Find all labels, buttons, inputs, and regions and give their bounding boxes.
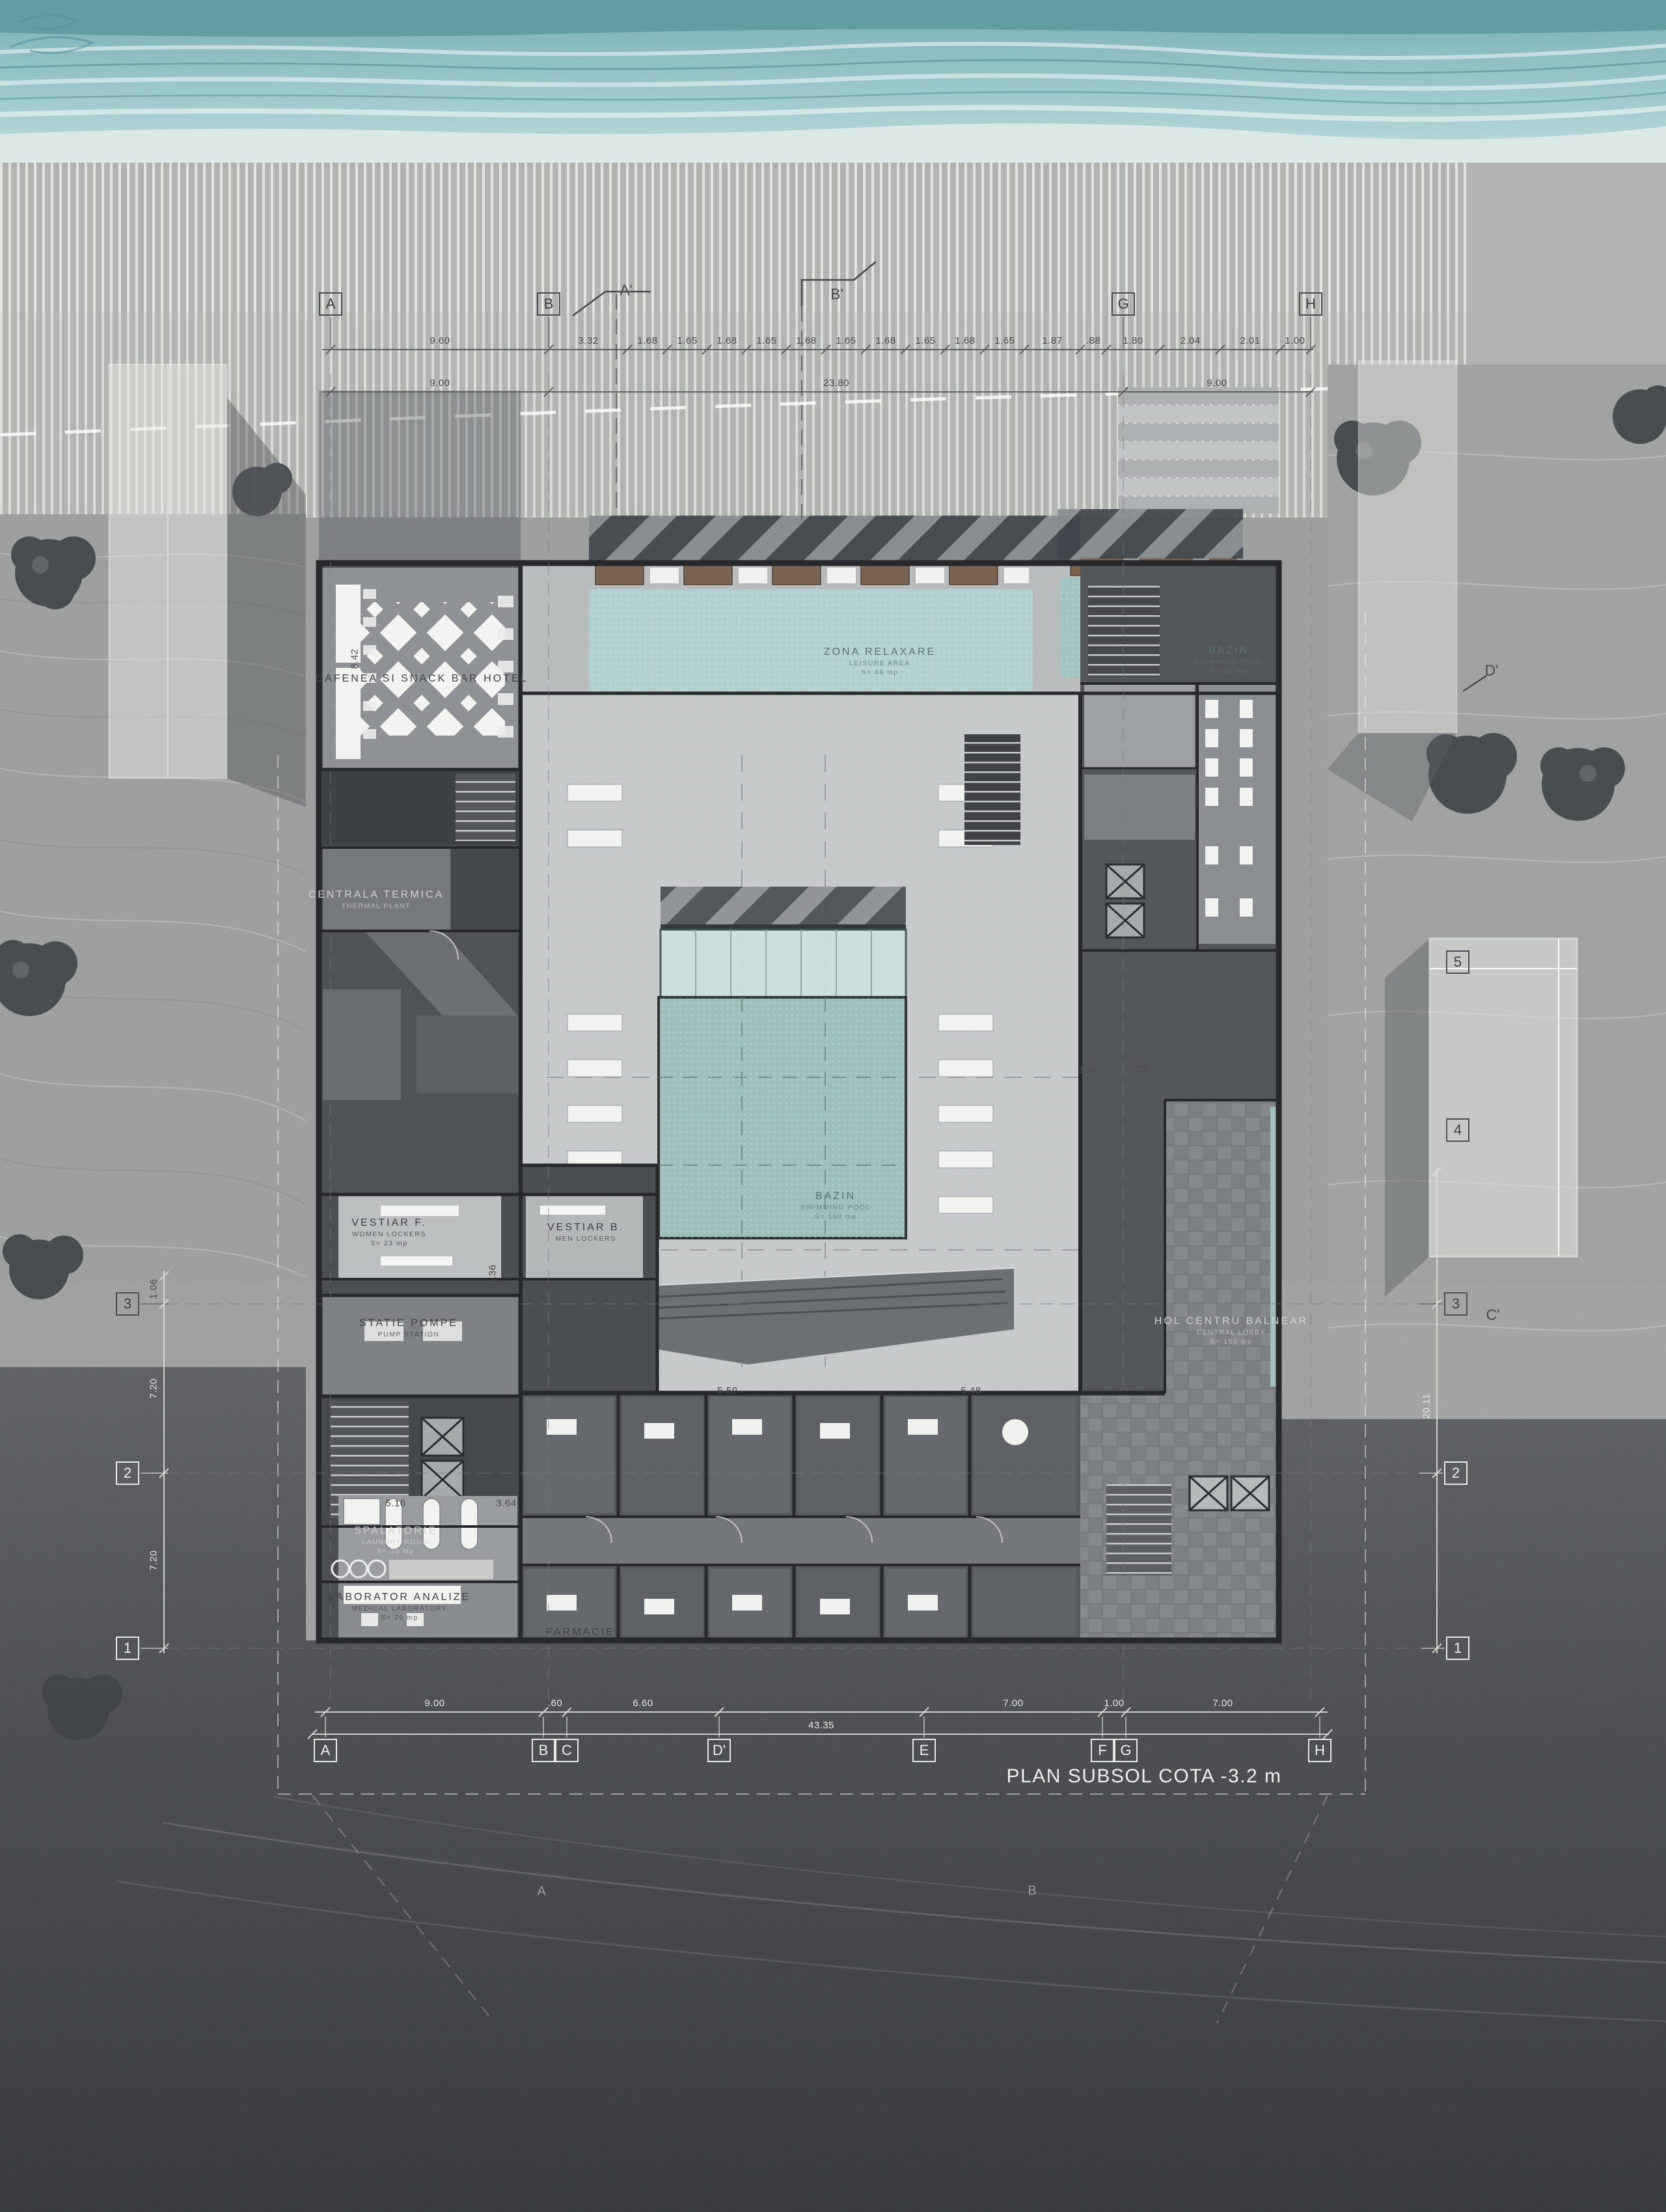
dimension-label: 23.80 xyxy=(823,378,849,389)
grid-bubble-G: G xyxy=(1114,1739,1138,1762)
room-label-spalatorie: SPALATORIELAUNDRY ROOMS= 33 mp xyxy=(354,1525,437,1555)
room-subtitle: LEISURE AREA xyxy=(824,659,936,667)
grid-bubble-3: 3 xyxy=(116,1292,139,1316)
grid-bubble-1: 1 xyxy=(1446,1637,1469,1660)
dimension-label: 7.00 xyxy=(1003,1698,1023,1709)
room-name: BAZIN xyxy=(1194,645,1264,657)
room-name: LABORATOR ANALIZE xyxy=(329,1592,471,1603)
plan-drawing xyxy=(0,0,1666,2212)
room-subtitle: THERMAL PLANT xyxy=(308,902,444,910)
room-name: ZONA RELAXARE xyxy=(824,646,936,658)
grid-bubble-F: F xyxy=(1091,1739,1114,1762)
grid-bubble-2: 2 xyxy=(1444,1461,1468,1485)
room-name: VESTIAR B. xyxy=(547,1222,624,1234)
room-subtitle: SWIMMING POOL xyxy=(800,1204,871,1211)
dimension-label: 1.00 xyxy=(1285,335,1305,346)
room-subtitle: CENTRAL LOBBY xyxy=(1154,1329,1309,1336)
room-name: FARMACIE xyxy=(546,1627,615,1638)
room-label-cafenea-si-snack-bar-hotel: CAFENEA SI SNACK BAR HOTEL xyxy=(316,673,528,685)
room-label-farmacie: FARMACIE xyxy=(546,1627,615,1638)
dimension-label: 8.42 xyxy=(349,648,361,669)
room-label-vestiar-b-: VESTIAR B.MEN LOCKERS xyxy=(547,1222,624,1243)
room-label-laborator-analize: LABORATOR ANALIZEMEDICAL LABORATORYS= 20… xyxy=(329,1592,471,1622)
room-label-bazin: BAZINSWIMMING POOLS= 160 mp xyxy=(800,1191,871,1221)
section-marker-C: C' xyxy=(1486,1306,1499,1324)
dimension-label: 20.11 xyxy=(1421,1394,1432,1419)
dimension-label: 1.65 xyxy=(677,335,697,346)
dimension-label: 5.59 xyxy=(717,1385,737,1396)
dimension-label: 9.00 xyxy=(1207,378,1227,389)
dimension-label: 3.32 xyxy=(578,335,598,346)
sea xyxy=(0,0,1666,164)
room-subtitle: WOMEN LOCKERS xyxy=(351,1230,426,1238)
section-marker-B: B xyxy=(1028,1884,1036,1899)
room-name: BAZIN xyxy=(800,1191,871,1202)
dimension-label: 7.20 xyxy=(148,1550,159,1570)
room-name: VESTIAR F. xyxy=(351,1217,426,1229)
room-area: S= 46 mp xyxy=(824,669,936,676)
room-name: CAFENEA SI SNACK BAR HOTEL xyxy=(316,673,528,685)
dimension-label: 1.65 xyxy=(915,335,935,346)
dimension-label: 2.04 xyxy=(1180,335,1200,346)
grid-bubble-2: 2 xyxy=(116,1461,139,1485)
grid-bubble-G: G xyxy=(1112,292,1135,316)
dimension-label: 3.64 xyxy=(496,1498,516,1509)
room-name: STATIE POMPE xyxy=(359,1318,458,1329)
dimension-label: 1.87 xyxy=(1042,335,1062,346)
grid-bubble-B: B xyxy=(537,292,560,316)
room-area: S= 20 mp xyxy=(329,1614,471,1622)
grid-bubble-E: E xyxy=(912,1739,936,1762)
room-label-zona-relaxare: ZONA RELAXARELEISURE AREAS= 46 mp xyxy=(824,646,936,676)
dimension-label: 1.68 xyxy=(875,335,895,346)
room-area: S= 160 mp xyxy=(800,1213,871,1221)
plan-title: PLAN SUBSOL COTA -3.2 m xyxy=(1007,1765,1282,1788)
room-label-bazin: BAZINSWIMMING POOLS= 46 mp xyxy=(1194,645,1264,675)
room-area: S= 33 mp xyxy=(354,1547,437,1555)
dimension-label: 1.06 xyxy=(148,1279,159,1299)
grid-bubble-4: 4 xyxy=(1446,1118,1469,1142)
dimension-label: 1.65 xyxy=(994,335,1015,346)
grid-bubble-D': D' xyxy=(707,1739,731,1762)
dimension-label: 5.48 xyxy=(961,1385,981,1396)
dimension-label: 9.60 xyxy=(430,335,450,346)
section-marker-B: B' xyxy=(830,286,843,303)
room-subtitle: MEN LOCKERS xyxy=(547,1235,624,1243)
dimension-label: 1.65 xyxy=(756,335,776,346)
floor-plan-canvas: PLAN SUBSOL COTA -3.2 m ABGHABCD'EFGH321… xyxy=(0,0,1666,2212)
room-area: S= 46 mp xyxy=(1194,667,1264,675)
dimension-label: 1.97 xyxy=(1078,1064,1099,1075)
dimension-label: 1.00 xyxy=(1104,1698,1124,1709)
grid-bubble-A: A xyxy=(319,292,342,316)
room-label-vestiar-f-: VESTIAR F.WOMEN LOCKERSS= 23 mp xyxy=(351,1217,426,1247)
room-name: SPALATORIE xyxy=(354,1525,437,1537)
grid-bubble-A: A xyxy=(314,1739,337,1762)
dimension-label: 2.01 xyxy=(1240,335,1260,346)
grid-bubble-C: C xyxy=(555,1739,579,1762)
dimension-label: 6.60 xyxy=(633,1698,653,1709)
dimension-label: 1.68 xyxy=(637,335,657,346)
dimension-label: 5.16 xyxy=(385,1498,405,1509)
dimension-label: 9.00 xyxy=(424,1698,444,1709)
grid-bubble-B: B xyxy=(532,1739,555,1762)
section-marker-A: A xyxy=(537,1885,545,1900)
dimension-label: 1.68 xyxy=(796,335,816,346)
dimension-label: .88 xyxy=(1086,335,1100,346)
dimension-label: 7.20 xyxy=(148,1378,159,1398)
dimension-label: 7.00 xyxy=(1212,1698,1233,1709)
section-marker-A: A' xyxy=(620,282,633,299)
room-area: S= 150 mp xyxy=(1154,1338,1309,1346)
room-area: S= 23 mp xyxy=(351,1239,426,1247)
room-subtitle: SWIMMING POOL xyxy=(1194,658,1264,666)
grid-bubble-H: H xyxy=(1299,292,1322,316)
dimension-label: 7.23 xyxy=(1128,1064,1148,1075)
dimension-label: 1.80 xyxy=(1123,335,1143,346)
terrace-steps xyxy=(1118,387,1279,514)
dimension-label: 1.65 xyxy=(836,335,856,346)
room-subtitle: PUMP STATION xyxy=(359,1331,458,1338)
dimension-label: 9.00 xyxy=(430,378,450,389)
grid-bubble-H: H xyxy=(1308,1739,1331,1762)
section-marker-D: D' xyxy=(1484,662,1498,680)
dimension-label: 5.36 xyxy=(487,1264,498,1284)
room-label-hol-centru-balnear: HOL CENTRU BALNEARCENTRAL LOBBYS= 150 mp xyxy=(1154,1316,1309,1346)
dimension-label: .60 xyxy=(548,1698,562,1709)
room-name: CENTRALA TERMICA xyxy=(308,889,444,901)
grid-bubble-3: 3 xyxy=(1444,1292,1468,1316)
room-subtitle: MEDICAL LABORATORY xyxy=(329,1605,471,1612)
room-subtitle: LAUNDRY ROOM xyxy=(354,1538,437,1546)
room-name: HOL CENTRU BALNEAR xyxy=(1154,1316,1309,1327)
dimension-label: 1.68 xyxy=(955,335,975,346)
grid-bubble-5: 5 xyxy=(1446,950,1469,974)
grid-bubble-1: 1 xyxy=(116,1637,139,1660)
dimension-label: 43.35 xyxy=(808,1720,834,1731)
room-label-statie-pompe: STATIE POMPEPUMP STATION xyxy=(359,1318,458,1338)
room-label-centrala-termica: CENTRALA TERMICATHERMAL PLANT xyxy=(308,889,444,910)
dimension-label: 1.68 xyxy=(717,335,737,346)
